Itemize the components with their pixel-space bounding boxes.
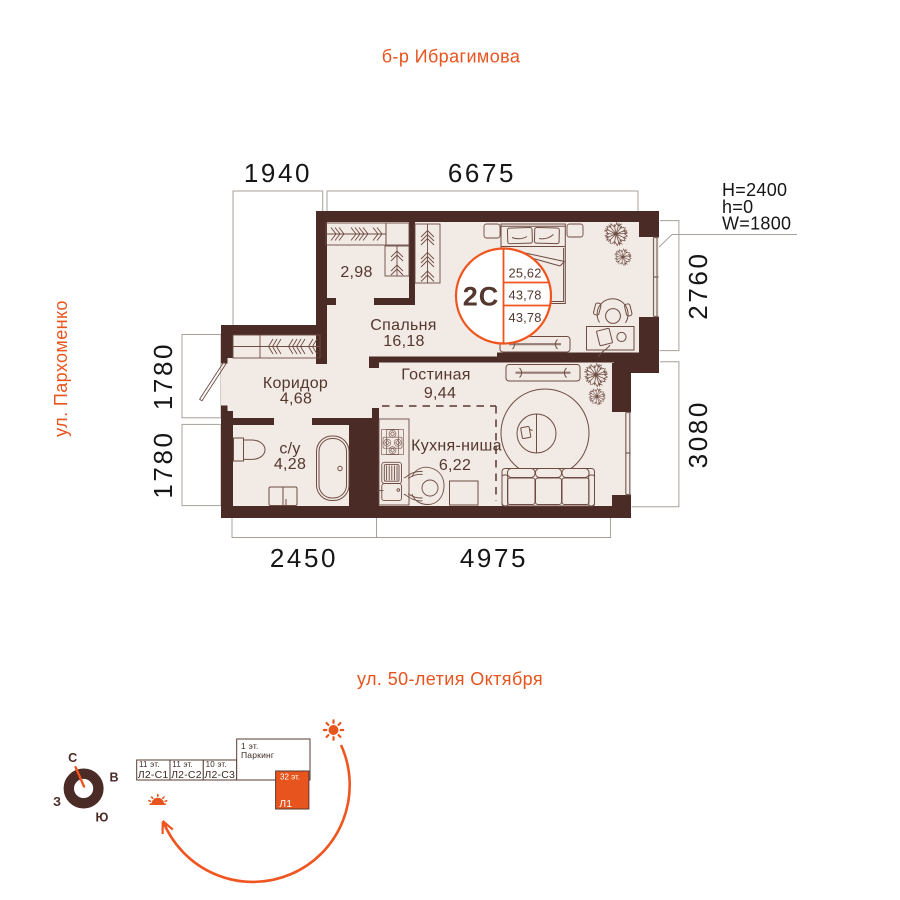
svg-text:2760: 2760 [683, 251, 713, 319]
svg-text:W=1800: W=1800 [722, 214, 791, 234]
svg-text:Л2-С1: Л2-С1 [138, 769, 169, 781]
svg-text:Ю: Ю [96, 810, 109, 824]
svg-text:43,78: 43,78 [509, 288, 542, 303]
svg-text:4975: 4975 [460, 543, 528, 573]
svg-text:ул. Пархоменко: ул. Пархоменко [51, 300, 71, 437]
svg-text:1780: 1780 [148, 430, 178, 498]
svg-text:9,44: 9,44 [424, 385, 456, 402]
svg-text:4,68: 4,68 [280, 391, 312, 408]
svg-text:ул. 50-летия Октября: ул. 50-летия Октября [357, 669, 543, 689]
svg-text:43,78: 43,78 [509, 310, 542, 325]
svg-text:Гостиная: Гостиная [401, 367, 471, 384]
svg-text:1780: 1780 [148, 342, 178, 410]
svg-text:С: С [68, 751, 77, 765]
svg-text:Спальня: Спальня [370, 317, 436, 334]
svg-text:Л2-С3: Л2-С3 [204, 769, 235, 781]
svg-text:1940: 1940 [244, 158, 312, 188]
svg-text:с/у: с/у [279, 441, 300, 458]
svg-text:25,62: 25,62 [509, 266, 542, 281]
svg-text:З: З [53, 795, 61, 809]
svg-text:2,98: 2,98 [340, 264, 372, 281]
svg-text:4,28: 4,28 [274, 456, 306, 473]
svg-text:Паркинг: Паркинг [241, 750, 274, 760]
svg-text:32 эт.: 32 эт. [280, 773, 300, 782]
svg-text:Коридор: Коридор [263, 375, 328, 392]
svg-text:Кухня-ниша: Кухня-ниша [411, 438, 502, 455]
svg-text:3080: 3080 [683, 400, 713, 468]
svg-text:6675: 6675 [448, 158, 516, 188]
svg-text:11 эт.: 11 эт. [172, 760, 193, 769]
svg-text:В: В [109, 770, 118, 784]
svg-text:16,18: 16,18 [383, 333, 425, 350]
svg-text:6,22: 6,22 [439, 457, 471, 474]
svg-text:11 эт.: 11 эт. [139, 760, 160, 769]
svg-text:б-р Ибрагимова: б-р Ибрагимова [382, 47, 521, 67]
svg-text:10 эт.: 10 эт. [206, 760, 227, 769]
svg-text:2С: 2С [463, 282, 500, 312]
svg-text:Л1: Л1 [279, 798, 292, 810]
svg-text:Л2-С2: Л2-С2 [171, 769, 202, 781]
svg-text:2450: 2450 [270, 543, 338, 573]
